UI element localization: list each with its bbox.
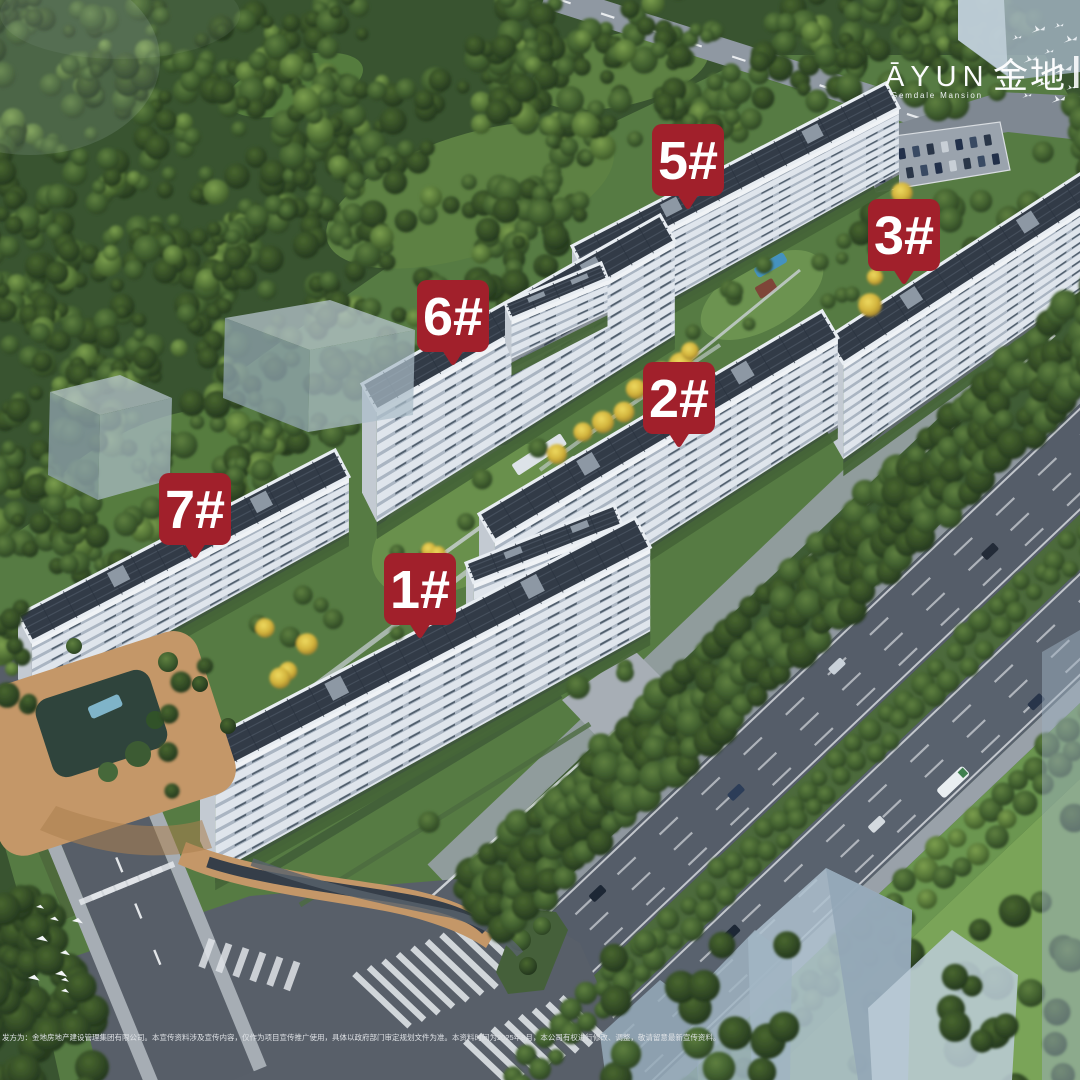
svg-text:2#: 2# — [649, 369, 709, 429]
svg-text:金地: 金地 — [993, 57, 1067, 96]
svg-text:5#: 5# — [658, 131, 718, 191]
svg-text:3#: 3# — [874, 206, 934, 266]
svg-text:1#: 1# — [390, 560, 450, 620]
svg-text:ĀYUN: ĀYUN — [885, 61, 990, 93]
svg-text:发方为：金地房地产建设管理集团有限公司。本宣传资料涉及宣传内: 发方为：金地房地产建设管理集团有限公司。本宣传资料涉及宣传内容，仅作为项目宣传推… — [2, 1032, 720, 1042]
svg-text:Gemdale Mansion: Gemdale Mansion — [891, 91, 983, 100]
svg-text:7#: 7# — [165, 480, 225, 540]
svg-text:6#: 6# — [423, 287, 483, 347]
